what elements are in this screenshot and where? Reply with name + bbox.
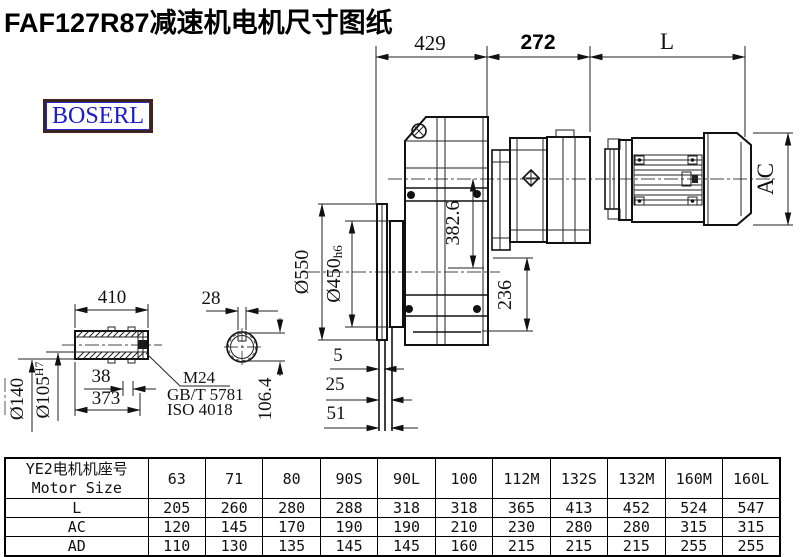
table-cell: 280	[608, 518, 665, 537]
table-cell: 318	[378, 499, 435, 518]
col-header: 160L	[723, 458, 780, 499]
main-view-dimensions: Ø550 Ø450h6 382.6 236 AC 5 25 51	[291, 133, 793, 428]
dim-236: 236	[494, 280, 516, 310]
table-cell: 145	[320, 537, 377, 557]
table-cell: 170	[263, 518, 320, 537]
table-cell: 288	[320, 499, 377, 518]
table-cell: 215	[493, 537, 550, 557]
page-title: FAF127R87减速机电机尺寸图纸	[4, 1, 393, 40]
boserl-logo-text: BOSERL	[46, 102, 150, 130]
header-cn: YE2电机机座号	[6, 460, 148, 479]
motor-size-header: YE2电机机座号 Motor Size	[5, 458, 148, 499]
table-cell: 524	[665, 499, 722, 518]
table-cell: 255	[723, 537, 780, 557]
table-cell: 280	[263, 499, 320, 518]
table-cell: 365	[493, 499, 550, 518]
boserl-logo: BOSERL	[43, 99, 153, 133]
bolt-dot	[473, 305, 481, 313]
dim-106-4: 106.4	[255, 377, 276, 420]
dim-dia105H7: Ø105H7	[32, 362, 54, 419]
table-cell: 315	[665, 518, 722, 537]
col-header: 100	[435, 458, 492, 499]
table-row-L: L 205 260 280 288 318 318 365 413 452 52…	[5, 499, 780, 518]
table-cell: 255	[665, 537, 722, 557]
table-cell: 215	[608, 537, 665, 557]
table-cell: 318	[435, 499, 492, 518]
table-row-AD: AD 110 130 135 145 145 160 215 215 215 2…	[5, 537, 780, 557]
bolt-diamond-icon	[523, 170, 539, 186]
col-header: 112M	[493, 458, 550, 499]
table-cell: 190	[320, 518, 377, 537]
dim-dia140: Ø140	[7, 378, 28, 420]
header-en: Motor Size	[6, 479, 148, 497]
table-cell: 110	[148, 537, 205, 557]
row-label: AD	[5, 537, 148, 557]
col-header: 71	[205, 458, 262, 499]
col-header: 90S	[320, 458, 377, 499]
col-header: 132S	[550, 458, 607, 499]
table-cell: 260	[205, 499, 262, 518]
bolt-dot	[405, 305, 413, 313]
output-flange	[377, 204, 403, 431]
table-cell: 230	[493, 518, 550, 537]
table-cell: 315	[723, 518, 780, 537]
dim-429: 429	[414, 31, 446, 55]
row-label: L	[5, 499, 148, 518]
dim-L: L	[660, 29, 674, 54]
technical-drawing: 429 272 L	[0, 0, 800, 455]
col-header: 80	[263, 458, 320, 499]
motor-size-table: YE2电机机座号 Motor Size 63 71 80 90S 90L 100…	[4, 457, 781, 557]
table-cell: 452	[608, 499, 665, 518]
adapter-stage	[492, 130, 620, 250]
table-cell: 145	[378, 537, 435, 557]
dim-410: 410	[98, 287, 127, 308]
table-cell: 190	[378, 518, 435, 537]
dim-dia550: Ø550	[291, 250, 313, 294]
dim-373: 373	[92, 388, 121, 409]
bolt-dot	[473, 190, 481, 198]
dim-AC: AC	[753, 163, 778, 195]
dim-272: 272	[520, 31, 555, 54]
col-header: 90L	[378, 458, 435, 499]
dim-25: 25	[326, 374, 345, 395]
table-header-row: YE2电机机座号 Motor Size 63 71 80 90S 90L 100…	[5, 458, 780, 499]
table-row-AC: AC 120 145 170 190 190 210 230 280 280 3…	[5, 518, 780, 537]
table-cell: 120	[148, 518, 205, 537]
dim-51: 51	[327, 403, 346, 424]
dim-382-6: 382.6	[442, 201, 464, 246]
table-cell: 413	[550, 499, 607, 518]
col-header: 63	[148, 458, 205, 499]
motor-size-table-wrap: YE2电机机座号 Motor Size 63 71 80 90S 90L 100…	[4, 457, 781, 557]
dim-5: 5	[333, 345, 343, 366]
table-cell: 160	[435, 537, 492, 557]
row-label: AC	[5, 518, 148, 537]
table-cell: 205	[148, 499, 205, 518]
table-cell: 215	[550, 537, 607, 557]
table-cell: 210	[435, 518, 492, 537]
dim-28: 28	[202, 288, 221, 309]
dim-38: 38	[92, 366, 111, 387]
dim-dia450h6: Ø450h6	[323, 245, 345, 303]
bolt-dot	[407, 191, 415, 199]
col-header: 132M	[608, 458, 665, 499]
table-cell: 145	[205, 518, 262, 537]
col-header: 160M	[665, 458, 722, 499]
table-cell: 135	[263, 537, 320, 557]
motor	[619, 133, 751, 225]
table-cell: 547	[723, 499, 780, 518]
callout-iso4018: ISO 4018	[167, 400, 233, 419]
table-cell: 130	[205, 537, 262, 557]
motor-corner-pads	[635, 156, 697, 205]
table-cell: 280	[550, 518, 607, 537]
